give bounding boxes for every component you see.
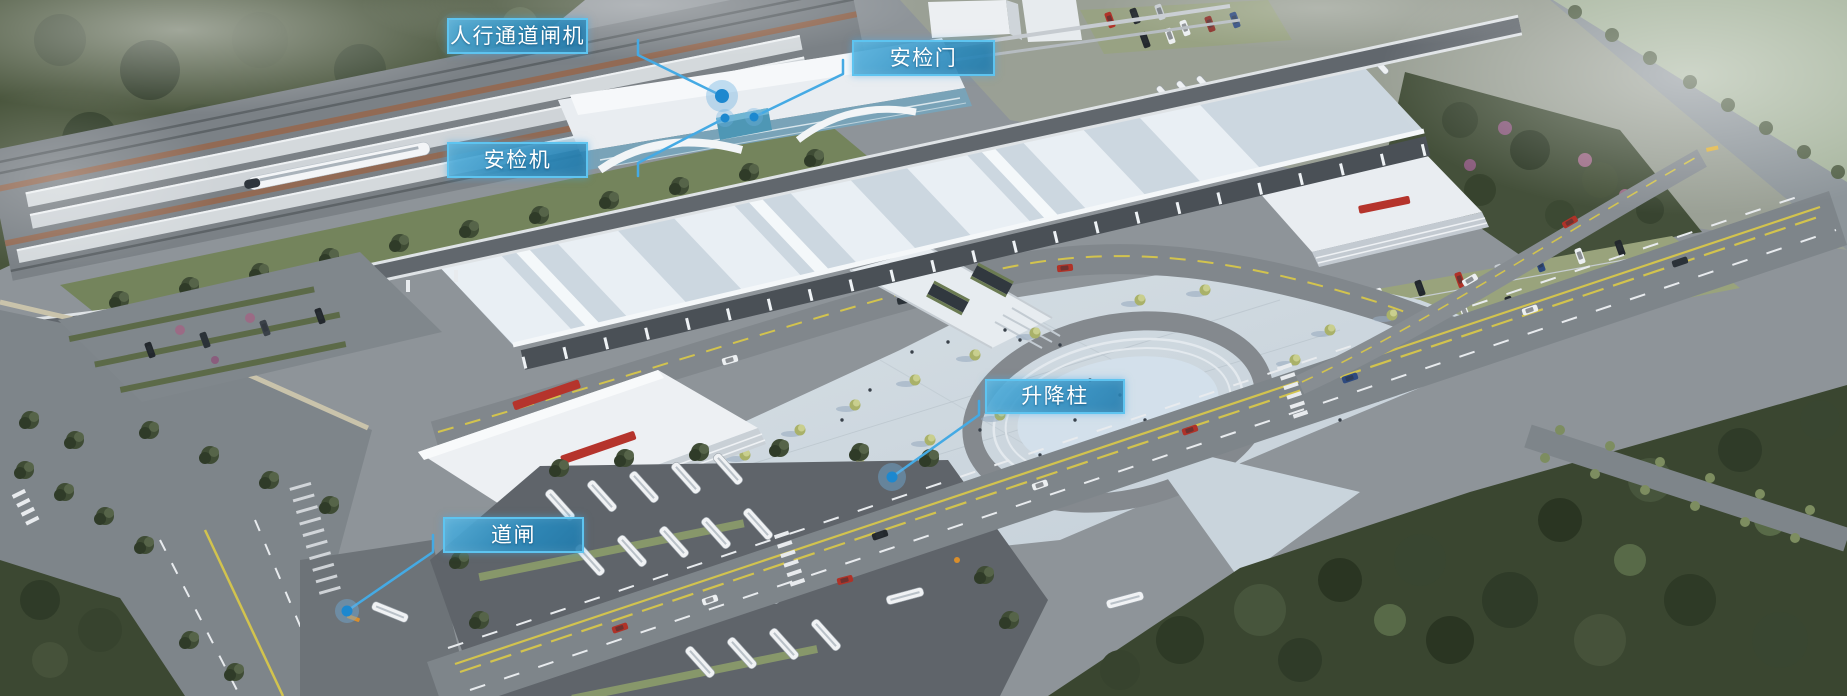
label-security-machine: 安检机 xyxy=(447,142,588,178)
marker-security-door xyxy=(750,113,759,122)
label-security-door: 安检门 xyxy=(852,40,995,76)
label-barrier-gate: 道闸 xyxy=(443,517,584,553)
marker-security-machine xyxy=(721,114,730,123)
label-lifting-bollard: 升降柱 xyxy=(985,379,1125,414)
station-aerial-diagram: 人行通道闸机 安检门 安检机 升降柱 道闸 xyxy=(0,0,1847,696)
marker-lifting-bollard xyxy=(887,472,898,483)
aerial-render xyxy=(0,0,1847,696)
warehouse-building xyxy=(928,0,1010,38)
marker-barrier-gate xyxy=(342,606,353,617)
marker-pedestrian-gate xyxy=(715,89,729,103)
label-pedestrian-gate: 人行通道闸机 xyxy=(447,18,588,54)
